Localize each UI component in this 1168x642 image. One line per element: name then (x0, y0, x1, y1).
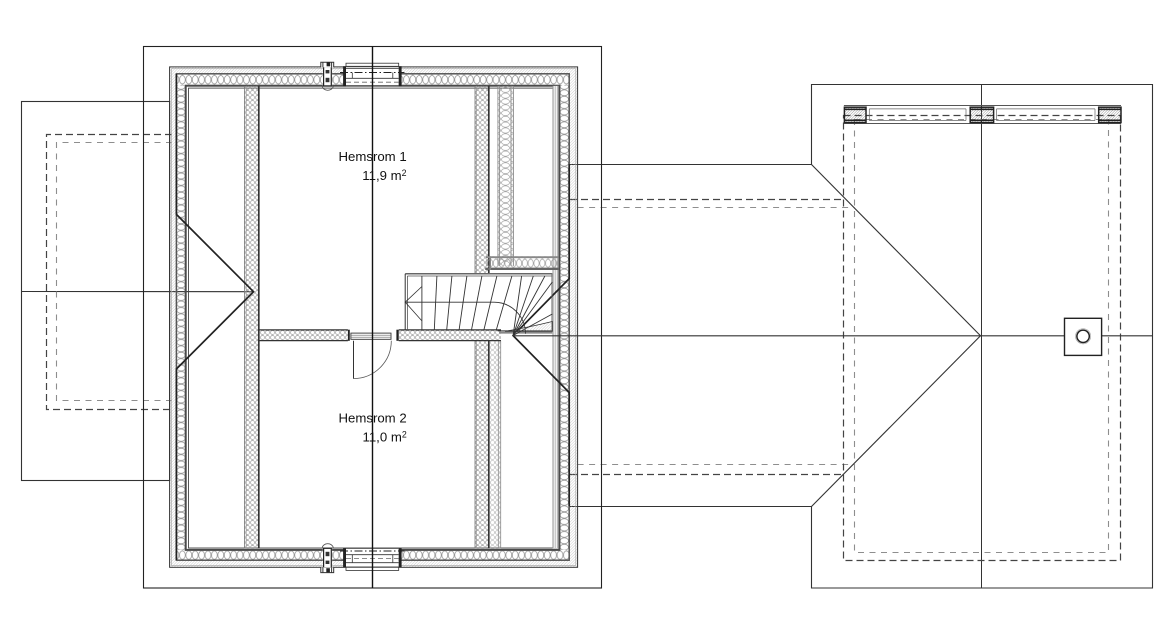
svg-text:11,0 m2: 11,0 m2 (362, 429, 406, 444)
svg-text:11,9 m2: 11,9 m2 (362, 168, 406, 183)
